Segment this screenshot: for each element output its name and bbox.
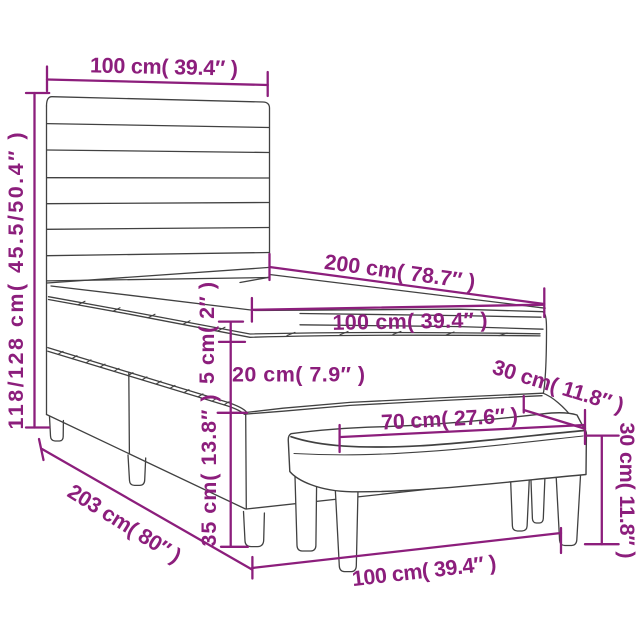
svg-text:35 cm( 13.8″ ): 35 cm( 13.8″ ): [197, 395, 221, 547]
svg-text:100 cm( 39.4″ ): 100 cm( 39.4″ ): [90, 53, 239, 80]
svg-text:100 cm( 39.4″ ): 100 cm( 39.4″ ): [332, 308, 487, 335]
svg-text:30 cm( 11.8″ ): 30 cm( 11.8″ ): [615, 423, 639, 559]
svg-text:5 cm( 2″ ): 5 cm( 2″ ): [195, 282, 219, 384]
svg-text:20 cm( 7.9″ ): 20 cm( 7.9″ ): [232, 363, 365, 387]
